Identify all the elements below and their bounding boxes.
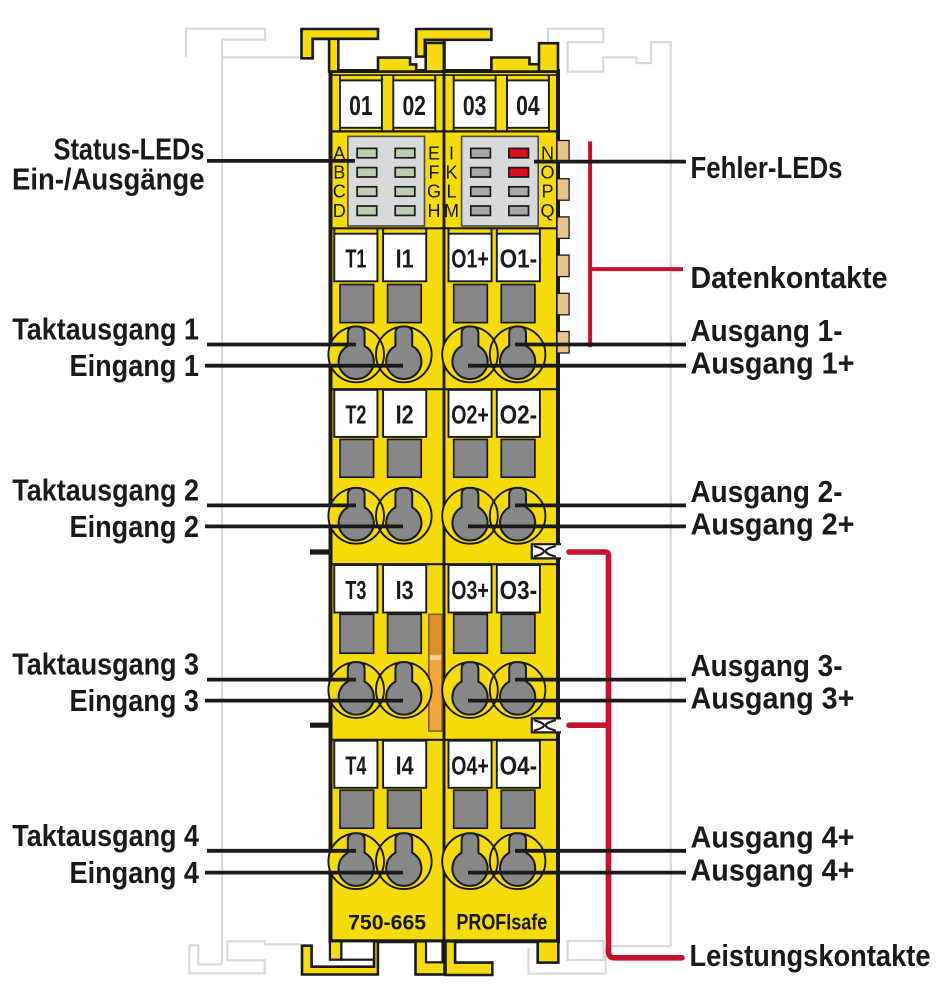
- svg-text:04: 04: [516, 90, 540, 121]
- svg-text:B: B: [333, 163, 345, 183]
- svg-text:Eingang 2: Eingang 2: [70, 509, 200, 544]
- svg-text:Ausgang 2+: Ausgang 2+: [691, 506, 855, 541]
- svg-text:P: P: [541, 182, 553, 202]
- svg-text:K: K: [445, 163, 457, 183]
- svg-text:C: C: [333, 182, 346, 202]
- svg-text:O4+: O4+: [451, 750, 489, 780]
- svg-text:03: 03: [463, 90, 487, 121]
- svg-text:O3-: O3-: [500, 575, 538, 605]
- svg-text:O1-: O1-: [500, 244, 538, 274]
- svg-text:G: G: [427, 182, 441, 202]
- svg-text:Ausgang 4+: Ausgang 4+: [691, 853, 855, 888]
- svg-text:Datenkontakte: Datenkontakte: [691, 260, 888, 295]
- svg-text:01: 01: [349, 90, 373, 121]
- svg-text:O2-: O2-: [500, 399, 538, 429]
- svg-text:O1+: O1+: [451, 244, 489, 274]
- svg-text:I2: I2: [396, 399, 414, 429]
- svg-text:T2: T2: [345, 399, 366, 429]
- svg-text:750-665: 750-665: [348, 912, 426, 935]
- svg-text:Taktausgang 4: Taktausgang 4: [12, 818, 199, 853]
- svg-text:Eingang 4: Eingang 4: [70, 855, 200, 890]
- svg-text:Ausgang 3+: Ausgang 3+: [691, 681, 855, 716]
- svg-text:H: H: [428, 201, 441, 221]
- svg-text:PROFIsafe: PROFIsafe: [456, 910, 547, 935]
- svg-text:E: E: [428, 143, 440, 163]
- svg-text:Ausgang 1+: Ausgang 1+: [691, 346, 855, 381]
- svg-text:Taktausgang 3: Taktausgang 3: [12, 647, 199, 682]
- svg-text:F: F: [429, 163, 440, 183]
- svg-text:Ausgang 2-: Ausgang 2-: [691, 474, 843, 509]
- svg-text:I4: I4: [396, 750, 414, 780]
- svg-text:L: L: [446, 182, 456, 202]
- svg-text:Taktausgang 1: Taktausgang 1: [12, 312, 199, 347]
- svg-text:Fehler-LEDs: Fehler-LEDs: [691, 150, 843, 185]
- svg-text:O: O: [540, 163, 554, 183]
- svg-text:I3: I3: [396, 575, 414, 605]
- svg-text:M: M: [444, 201, 459, 221]
- svg-text:Ausgang 1-: Ausgang 1-: [691, 313, 843, 348]
- svg-text:Ausgang 4+: Ausgang 4+: [691, 819, 855, 854]
- svg-text:02: 02: [402, 90, 426, 121]
- svg-text:D: D: [333, 201, 346, 221]
- svg-text:Ausgang 3-: Ausgang 3-: [691, 648, 843, 683]
- svg-text:I1: I1: [396, 244, 414, 274]
- svg-text:Eingang 3: Eingang 3: [70, 683, 200, 718]
- svg-text:T1: T1: [345, 244, 366, 274]
- svg-text:Eingang 1: Eingang 1: [70, 348, 200, 383]
- svg-text:T3: T3: [345, 575, 366, 605]
- svg-text:O2+: O2+: [451, 399, 489, 429]
- svg-text:I: I: [449, 143, 454, 163]
- svg-text:Ein-/Ausgänge: Ein-/Ausgänge: [12, 162, 205, 197]
- svg-text:O3+: O3+: [451, 575, 489, 605]
- svg-text:Taktausgang 2: Taktausgang 2: [12, 472, 199, 507]
- svg-text:Q: Q: [540, 201, 554, 221]
- svg-text:Leistungskontakte: Leistungskontakte: [690, 938, 931, 973]
- svg-text:T4: T4: [345, 750, 366, 780]
- svg-text:O4-: O4-: [500, 750, 538, 780]
